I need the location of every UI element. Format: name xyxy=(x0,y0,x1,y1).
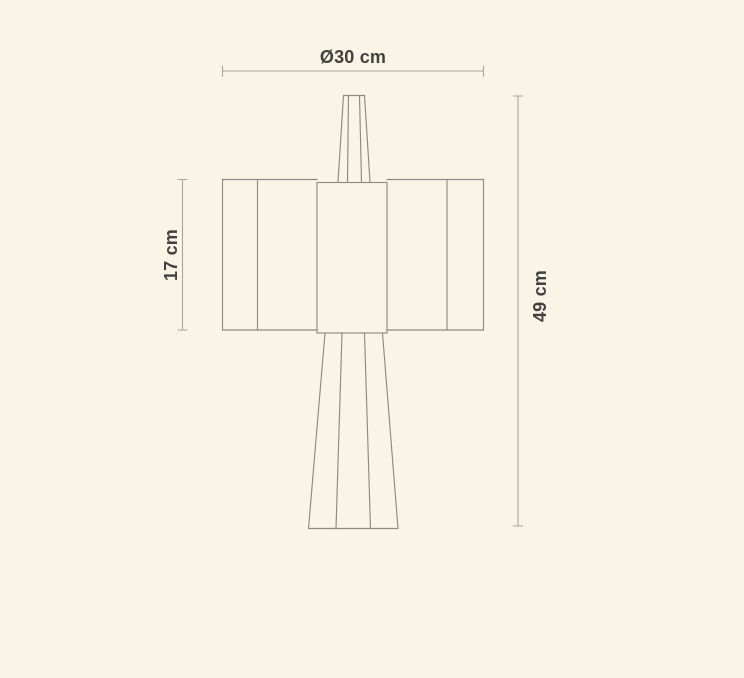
total-height-label: 49 cm xyxy=(530,270,550,322)
lamp-dimension-diagram: Ø30 cm 17 cm 49 cm xyxy=(0,0,744,678)
diameter-label: Ø30 cm xyxy=(320,47,386,67)
technical-drawing-svg: Ø30 cm 17 cm 49 cm xyxy=(0,0,744,678)
diagram-background xyxy=(0,0,744,678)
shade-height-label: 17 cm xyxy=(161,229,181,281)
